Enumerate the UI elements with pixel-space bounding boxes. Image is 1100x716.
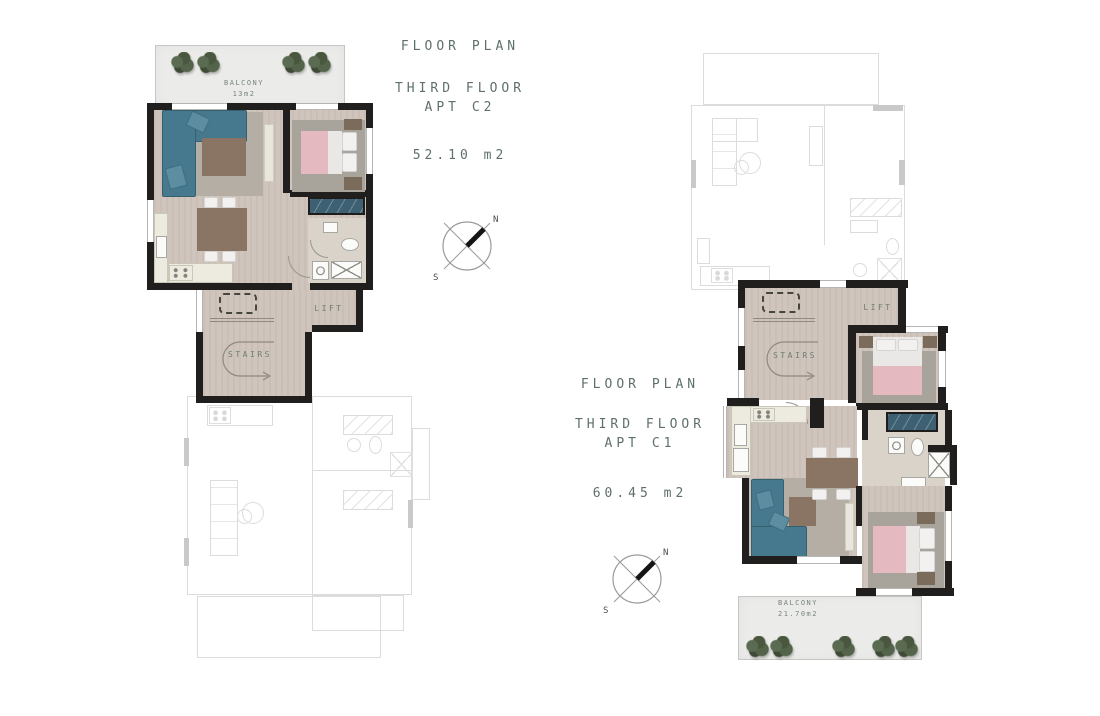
window xyxy=(296,103,338,110)
window xyxy=(797,556,840,564)
dining-chair xyxy=(222,251,236,262)
dining-table xyxy=(806,458,858,488)
lift-label-c2: LIFT xyxy=(299,304,359,313)
balcony-label-text: BALCONY xyxy=(738,598,858,609)
faded-fridge xyxy=(697,238,710,264)
shower xyxy=(331,261,362,279)
stair-landing-line xyxy=(210,318,274,322)
faded-closet xyxy=(343,490,393,510)
balcony-label-c2: BALCONY 13m2 xyxy=(184,78,304,100)
kitchen-sink xyxy=(156,236,167,258)
compass-north-label: N xyxy=(493,215,498,225)
washing-machine xyxy=(312,261,329,280)
window xyxy=(906,326,938,333)
window xyxy=(196,290,203,332)
window xyxy=(876,588,912,596)
nightstand xyxy=(917,572,935,585)
toilet xyxy=(911,438,924,456)
bed-c1 xyxy=(906,526,920,573)
stair-opening-dashed xyxy=(762,292,800,313)
stove xyxy=(169,265,193,281)
window xyxy=(820,280,846,288)
balcony-area-text: 13m2 xyxy=(184,89,304,100)
plan-c1-apt-line: APT C1 xyxy=(540,436,740,451)
faded-wall-line xyxy=(824,105,825,245)
dining-chair xyxy=(204,197,218,208)
faded-closet xyxy=(343,415,393,435)
wall xyxy=(945,410,952,445)
wall xyxy=(196,332,203,396)
dining-chair xyxy=(836,447,851,458)
bed-c1 xyxy=(873,354,922,366)
window xyxy=(738,370,745,400)
plan-c2-title: FLOOR PLAN xyxy=(360,39,560,54)
faded-table xyxy=(237,509,252,524)
wall xyxy=(856,326,906,333)
compass-icon: N S xyxy=(597,539,677,619)
tv-stand xyxy=(264,124,274,182)
bathroom-sink xyxy=(323,222,338,233)
shower xyxy=(928,452,950,478)
nightstand xyxy=(859,336,873,348)
wall xyxy=(856,588,876,596)
plant-icon xyxy=(170,52,194,74)
stairs-label-c1: STAIRS xyxy=(755,351,835,360)
balcony-label-c1: BALCONY 21.70m2 xyxy=(738,598,858,620)
plant-icon xyxy=(281,52,305,74)
dining-chair xyxy=(812,447,827,458)
wall xyxy=(312,325,363,332)
bed-c1 xyxy=(873,526,906,573)
faded-window-block xyxy=(691,160,696,188)
faded-window-block xyxy=(873,105,903,111)
faded-toilet xyxy=(369,436,382,454)
wall xyxy=(727,398,759,406)
wall xyxy=(950,452,957,485)
compass-south-label: S xyxy=(433,273,438,283)
nightstand xyxy=(344,119,362,130)
compass-north-label: N xyxy=(663,548,668,558)
plant-icon xyxy=(745,636,769,658)
faded-window-block xyxy=(899,160,905,185)
faded-niche-outline xyxy=(412,428,430,500)
faded-balcony-outline xyxy=(703,53,879,105)
balcony-area-text: 21.70m2 xyxy=(738,609,858,620)
window xyxy=(147,200,154,242)
faded-stove xyxy=(209,407,231,424)
bed-pillow xyxy=(898,339,918,351)
plant-icon xyxy=(769,636,793,658)
floorplan-sheet: BALCONY 13m2 xyxy=(0,0,1100,716)
stair-opening-dashed xyxy=(219,293,257,314)
compass-south-label: S xyxy=(603,606,608,616)
wall xyxy=(862,410,868,440)
bed-pillow xyxy=(342,153,357,172)
faded-tv-stand xyxy=(809,126,823,166)
plan-c2-floor-line: THIRD FLOOR xyxy=(360,81,560,96)
faded-wall-line xyxy=(312,396,313,595)
plan-c1-floor-line: THIRD FLOOR xyxy=(540,417,740,432)
faded-window-block xyxy=(184,538,189,566)
wall xyxy=(196,396,312,403)
window xyxy=(738,308,745,346)
dining-table xyxy=(197,208,247,251)
lift-label-c1: LIFT xyxy=(848,303,908,312)
bed-c1 xyxy=(873,366,922,395)
stairs-label-c2: STAIRS xyxy=(210,350,290,359)
plan-c2-area: 52.10 m2 xyxy=(360,148,560,163)
wall xyxy=(738,288,745,308)
bed-c2 xyxy=(301,131,328,174)
dining-chair xyxy=(222,197,236,208)
coffee-table xyxy=(202,138,246,176)
sofa-c1 xyxy=(751,526,807,557)
stove xyxy=(753,408,775,421)
balcony-label-text: BALCONY xyxy=(184,78,304,89)
wall xyxy=(856,403,948,410)
wall xyxy=(810,398,824,428)
coffee-table xyxy=(789,497,816,526)
dining-chair xyxy=(836,489,851,500)
plant-icon xyxy=(894,636,918,658)
bed-pillow xyxy=(919,551,935,572)
wall xyxy=(912,588,954,596)
bed-pillow xyxy=(919,528,935,549)
wall xyxy=(742,478,749,558)
closet xyxy=(886,412,938,432)
window xyxy=(945,511,952,561)
kitchen-sink xyxy=(734,424,747,446)
plan-c2-apt-line: APT C2 xyxy=(360,100,560,115)
nightstand xyxy=(917,512,935,524)
compass-icon: N S xyxy=(427,206,507,286)
plant-icon xyxy=(196,52,220,74)
wall xyxy=(938,333,946,351)
wall xyxy=(738,346,745,370)
faded-washer xyxy=(347,438,361,452)
plant-icon xyxy=(307,52,331,74)
tv-stand xyxy=(845,503,854,551)
plan-c1-title: FLOOR PLAN xyxy=(540,377,740,392)
dining-chair xyxy=(204,251,218,262)
wall xyxy=(945,486,952,511)
toilet xyxy=(341,238,359,251)
plan-c1-area: 60.45 m2 xyxy=(540,486,740,501)
bed-pillow xyxy=(342,132,357,151)
faded-cabinet xyxy=(850,220,878,233)
faded-toilet xyxy=(886,238,899,255)
faded-balcony-outline xyxy=(197,596,381,658)
plant-icon xyxy=(871,636,895,658)
faded-shower xyxy=(390,452,413,477)
faded-window-block xyxy=(184,438,189,466)
nightstand xyxy=(923,336,937,348)
wall xyxy=(742,556,797,564)
bed-pillow xyxy=(876,339,896,351)
faded-sofa xyxy=(712,118,737,186)
wall xyxy=(305,332,312,403)
faded-table xyxy=(734,160,749,175)
window xyxy=(938,351,946,387)
window xyxy=(172,103,227,110)
stair-landing-line xyxy=(753,318,815,322)
washing-machine xyxy=(888,437,905,454)
entrance-gap xyxy=(292,283,310,290)
dining-chair xyxy=(812,489,827,500)
faded-window-block xyxy=(408,500,413,528)
wall xyxy=(928,445,957,452)
wall xyxy=(840,556,862,564)
wall xyxy=(848,333,856,403)
plant-icon xyxy=(831,636,855,658)
faded-sofa xyxy=(210,480,238,556)
closet xyxy=(308,197,365,215)
faded-washer xyxy=(853,263,867,277)
window xyxy=(723,406,727,478)
nightstand xyxy=(344,177,362,190)
wall xyxy=(283,110,290,193)
kitchen-cabinet xyxy=(733,448,749,472)
wall xyxy=(938,326,948,333)
wall xyxy=(938,387,946,403)
faded-stove xyxy=(711,268,733,283)
faded-closet xyxy=(850,198,902,217)
bed-c2 xyxy=(328,131,342,174)
